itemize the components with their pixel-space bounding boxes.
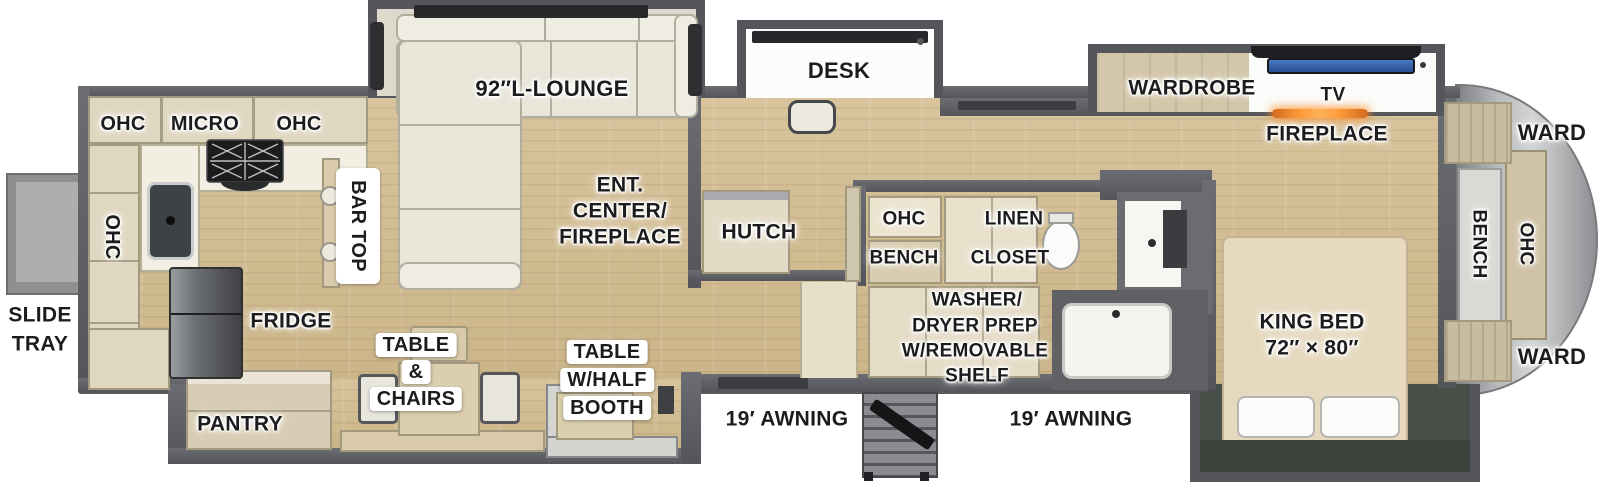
label-bath-ohc: OHC	[882, 210, 925, 229]
dinette-chair-right	[480, 372, 520, 424]
front-cabinet-top	[1444, 102, 1512, 164]
stove-icon	[206, 139, 284, 191]
slide-tray-inner	[16, 182, 82, 282]
label-hutch: HUTCH	[722, 222, 797, 243]
entry-landing	[800, 282, 858, 378]
entry-door-slot	[718, 377, 808, 389]
desk-chair	[788, 100, 836, 134]
label-ohc-upper-left: OHC	[100, 114, 145, 134]
label-lounge: 92″L-LOUNGE	[475, 78, 628, 100]
label-bath-bench: BENCH	[869, 249, 938, 268]
desk-monitor-dot	[917, 38, 924, 45]
label-ent-1: ENT.	[597, 175, 644, 196]
label-micro: MICRO	[171, 114, 239, 134]
label-dinette-1: TABLE	[376, 333, 457, 357]
rear-lower-cabinet	[88, 328, 170, 390]
label-slide-tray-2: TRAY	[12, 334, 68, 355]
label-king-bed-2: 72″ × 80″	[1265, 338, 1358, 359]
bath-vanity-faucet	[1163, 210, 1187, 268]
entry-steps-wheel-right	[920, 472, 929, 481]
tv-mount-band	[1251, 46, 1421, 58]
fireplace-glow	[1272, 109, 1368, 118]
kitchen-sink-faucet-dot	[166, 216, 175, 225]
label-bar-top: BAR TOP	[348, 180, 368, 272]
label-washer-4: SHELF	[945, 367, 1009, 386]
label-linen-2: CLOSET	[971, 249, 1050, 268]
label-fireplace: FIREPLACE	[1266, 124, 1388, 145]
label-desk: DESK	[808, 60, 870, 82]
booth-corner-wall	[658, 386, 674, 414]
bed-pillow-left	[1237, 396, 1315, 438]
tv-camera-dot	[1420, 62, 1426, 68]
label-pantry: PANTRY	[197, 414, 283, 435]
sofa-arm-bottom	[398, 262, 522, 290]
desk-surface	[752, 31, 928, 43]
bed-pillow-right	[1320, 396, 1400, 438]
bed-foot-band	[1200, 440, 1470, 472]
bath-tub-faucet-dot	[1112, 310, 1120, 318]
fridge-icon	[169, 267, 243, 379]
label-booth-3: BOOTH	[563, 396, 651, 420]
label-awning-left: 19′ AWNING	[726, 409, 849, 430]
label-dinette-3: CHAIRS	[370, 387, 462, 411]
bath-top-wall	[853, 180, 1113, 192]
tv-screen	[1267, 58, 1415, 74]
dinette-slide-wall-right	[681, 372, 701, 464]
ent-center-wall	[688, 96, 701, 288]
entry-steps-wheel-left	[864, 472, 873, 481]
sofa-back	[396, 14, 692, 42]
label-awning-right: 19′ AWNING	[1010, 409, 1133, 430]
pantry-cabinet	[186, 370, 332, 450]
floorplan-canvas: SLIDE TRAY 19′ AWNING 19′ AWNING OHC MIC…	[0, 0, 1600, 485]
label-wardrobe: WARDROBE	[1128, 78, 1255, 99]
label-ohc-upper-right: OHC	[276, 114, 321, 134]
label-ent-2: CENTER/	[573, 201, 667, 222]
front-cabinet-bottom	[1444, 320, 1512, 382]
label-front-bench: BENCH	[1470, 209, 1489, 278]
label-fridge: FRIDGE	[250, 311, 331, 332]
hutch-side-cabinet	[845, 186, 861, 282]
label-ward-top: WARD	[1518, 122, 1586, 144]
label-booth-2: W/HALF	[560, 368, 654, 392]
top-wall-window	[958, 101, 1076, 110]
label-washer-2: DRYER PREP	[912, 317, 1038, 336]
label-tv: TV	[1321, 86, 1346, 105]
bath-vanity-faucet-dot	[1148, 239, 1156, 247]
label-slide-tray-1: SLIDE	[8, 305, 71, 326]
lounge-window-left-icon	[370, 22, 384, 90]
label-booth-1: TABLE	[567, 340, 648, 364]
lounge-window-right-icon	[688, 24, 702, 96]
label-ohc-side: OHC	[102, 214, 122, 259]
label-king-bed-1: KING BED	[1259, 312, 1364, 333]
label-ent-3: FIREPLACE	[559, 227, 681, 248]
toilet-tank	[1048, 212, 1074, 224]
label-washer-1: WASHER/	[932, 291, 1023, 310]
label-linen-1: LINEN	[985, 210, 1044, 229]
label-ward-bottom: WARD	[1518, 346, 1586, 368]
label-washer-3: W/REMOVABLE	[902, 342, 1049, 361]
label-dinette-2: &	[402, 360, 431, 384]
label-front-ohc: OHC	[1517, 222, 1536, 265]
lounge-window-band	[414, 5, 648, 18]
